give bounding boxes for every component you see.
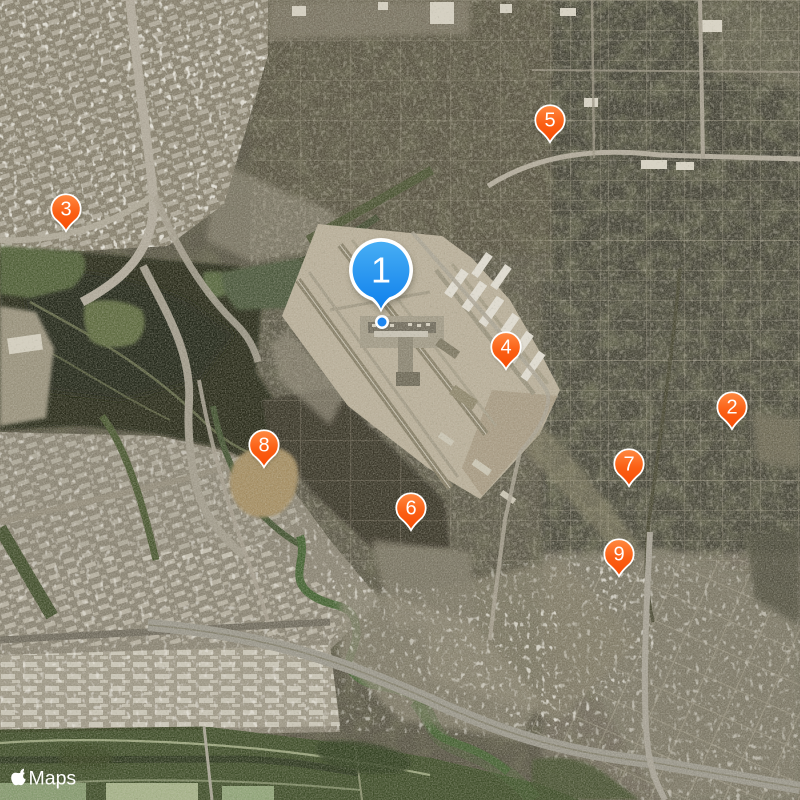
svg-text:4: 4 — [500, 337, 511, 359]
svg-text:6: 6 — [405, 498, 416, 520]
svg-text:2: 2 — [726, 397, 737, 419]
svg-text:7: 7 — [623, 454, 634, 476]
svg-text:Maps: Maps — [29, 768, 77, 790]
svg-text:3: 3 — [60, 199, 71, 221]
svg-text:8: 8 — [258, 435, 269, 457]
svg-text:9: 9 — [613, 544, 624, 566]
svg-text:5: 5 — [544, 110, 555, 132]
svg-text:1: 1 — [371, 250, 391, 291]
